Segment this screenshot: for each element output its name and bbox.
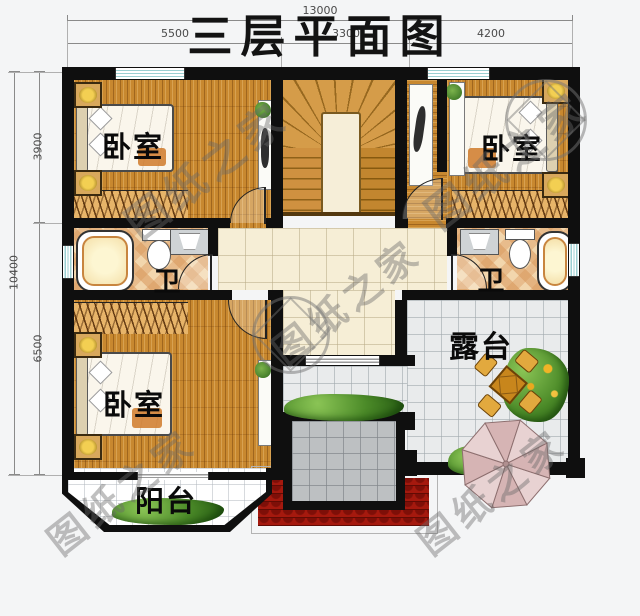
plant (446, 84, 462, 100)
nightstand (74, 434, 102, 460)
room-label-balcony: 阳台 (116, 478, 216, 520)
room-label-bath: 卫 (150, 260, 186, 299)
room-label-terrace: 露台 (431, 322, 531, 366)
nightstand (74, 332, 102, 358)
drawing-title: 三层平面图 (0, 0, 640, 65)
dim-left-total: 10400 (8, 249, 21, 297)
decor-item (261, 128, 269, 168)
wall (62, 290, 232, 300)
floor-plan: 卧室 卧室 卧室 卫 卫 露台 阳台 图纸之家 图纸之家 图纸之家 图纸之家 图… (0, 0, 640, 616)
wall (268, 290, 283, 300)
window (427, 68, 490, 79)
dim-left-seg2: 6500 (32, 325, 45, 373)
window (569, 243, 579, 277)
room-label-bedroom: 卧室 (83, 124, 183, 166)
wall (395, 300, 407, 366)
shrubs (284, 394, 404, 421)
dim-extension (8, 475, 62, 476)
door-leaf (451, 254, 453, 290)
door-leaf (441, 178, 443, 220)
door-leaf (210, 254, 212, 290)
dim-extension (33, 223, 62, 224)
sink (170, 229, 209, 255)
hall-floor (218, 228, 447, 290)
dim-left-seg1: 3900 (32, 123, 45, 171)
room-label-bedroom: 卧室 (462, 126, 562, 168)
door-leaf (265, 300, 267, 338)
wall (271, 67, 283, 228)
plant (255, 362, 271, 378)
stair-base-line (283, 212, 395, 216)
window-to-terrace (305, 356, 380, 365)
bulkhead-roof (292, 421, 396, 501)
wall (446, 218, 580, 228)
window (115, 68, 185, 79)
wall (400, 450, 417, 476)
room-label-bath: 卫 (474, 259, 510, 298)
wall (62, 218, 230, 228)
nightstand (542, 172, 570, 198)
sink (460, 229, 499, 255)
wall (437, 67, 447, 172)
nightstand (74, 170, 102, 196)
nightstand (542, 78, 570, 104)
window (63, 245, 73, 279)
nightstand (74, 82, 102, 108)
dim-extension (8, 72, 62, 73)
bathtub (76, 230, 134, 292)
stair-well (321, 112, 361, 216)
wall (447, 228, 457, 256)
room-label-bedroom: 卧室 (84, 382, 184, 424)
wall (566, 458, 585, 478)
wall (208, 228, 218, 256)
wall (398, 412, 415, 430)
door-leaf (264, 187, 266, 224)
wardrobe (74, 302, 188, 334)
plant (255, 102, 271, 118)
wall (271, 300, 283, 480)
toilet (509, 239, 531, 269)
